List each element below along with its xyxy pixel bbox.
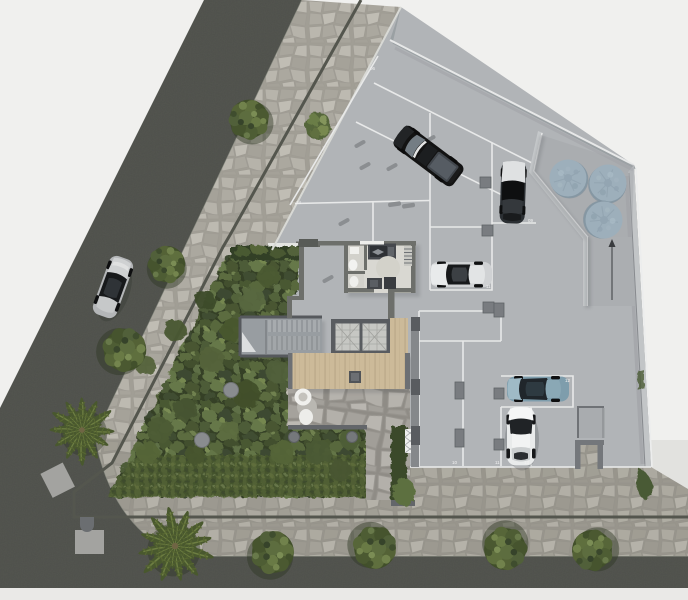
svg-text:10: 10: [452, 460, 458, 465]
svg-text:13: 13: [524, 460, 530, 465]
svg-text:06: 06: [370, 66, 376, 71]
svg-text:24: 24: [296, 200, 302, 205]
svg-text:11: 11: [486, 284, 491, 289]
svg-text:12: 12: [565, 378, 571, 383]
svg-text:11: 11: [495, 460, 500, 465]
svg-text:09: 09: [528, 218, 534, 223]
